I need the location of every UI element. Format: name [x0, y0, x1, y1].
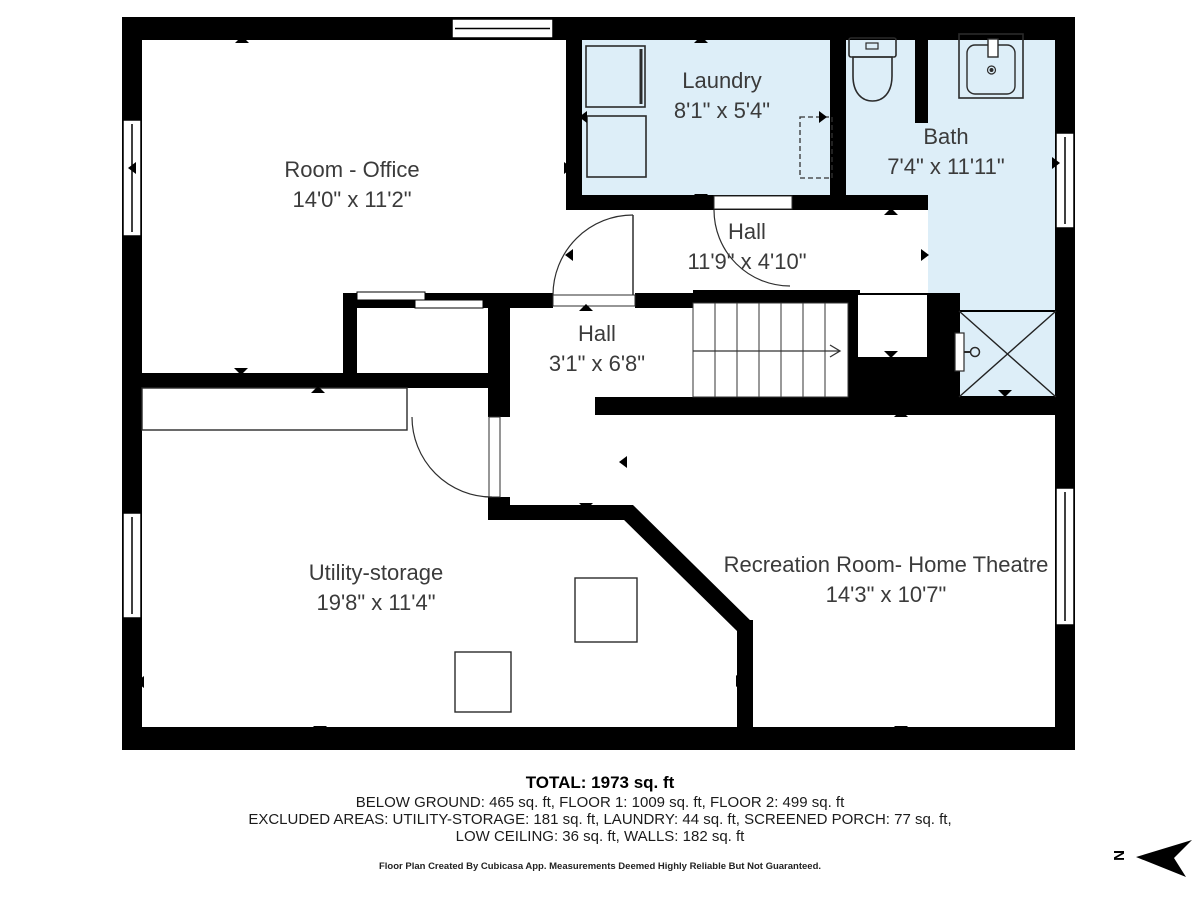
room-name: Bath	[887, 122, 1004, 152]
staircase	[693, 303, 848, 397]
window-top	[452, 19, 553, 38]
room-dims: 8'1" x 5'4"	[674, 96, 770, 126]
room-label-hall-upper: Hall 11'9" x 4'10"	[687, 217, 806, 277]
room-name: Utility-storage	[309, 558, 443, 588]
utility-box-1	[575, 578, 637, 642]
disclaimer: Floor Plan Created By Cubicasa App. Meas…	[0, 861, 1200, 872]
room-label-hall-lower: Hall 3'1" x 6'8"	[549, 319, 645, 379]
room-name: Hall	[687, 217, 806, 247]
utility-box-2	[455, 652, 511, 712]
room-dims: 19'8" x 11'4"	[309, 588, 443, 618]
floorplan-drawing	[0, 0, 1200, 900]
room-label-recreation: Recreation Room- Home Theatre 14'3" x 10…	[724, 550, 1049, 610]
floor-areas: BELOW GROUND: 465 sq. ft, FLOOR 1: 1009 …	[0, 794, 1200, 811]
room-dims: 14'3" x 10'7"	[724, 580, 1049, 610]
window-right-bath	[1056, 133, 1074, 228]
window-left-upper	[123, 120, 141, 236]
room-name: Room - Office	[284, 155, 419, 185]
window-right-rec	[1056, 488, 1074, 625]
room-label-laundry: Laundry 8'1" x 5'4"	[674, 66, 770, 126]
area-summary: TOTAL: 1973 sq. ft BELOW GROUND: 465 sq.…	[0, 772, 1200, 872]
room-dims: 14'0" x 11'2"	[284, 185, 419, 215]
excluded-areas-2: LOW CEILING: 36 sq. ft, WALLS: 182 sq. f…	[0, 828, 1200, 845]
office-door	[553, 215, 635, 306]
excluded-areas-1: EXCLUDED AREAS: UTILITY-STORAGE: 181 sq.…	[0, 811, 1200, 828]
window-left-lower	[123, 513, 141, 618]
room-name: Recreation Room- Home Theatre	[724, 550, 1049, 580]
room-dims: 7'4" x 11'11"	[887, 152, 1004, 182]
stair-landing	[858, 295, 927, 357]
utility-counter	[142, 388, 407, 430]
room-dims: 11'9" x 4'10"	[687, 247, 806, 277]
utility-door	[412, 417, 500, 497]
room-label-office: Room - Office 14'0" x 11'2"	[284, 155, 419, 215]
furniture	[142, 388, 637, 712]
room-name: Hall	[549, 319, 645, 349]
room-dims: 3'1" x 6'8"	[549, 349, 645, 379]
room-label-utility: Utility-storage 19'8" x 11'4"	[309, 558, 443, 618]
room-name: Laundry	[674, 66, 770, 96]
room-label-bath: Bath 7'4" x 11'11"	[887, 122, 1004, 182]
shower-icon	[955, 311, 1056, 397]
floorplan-page: Room - Office 14'0" x 11'2" Laundry 8'1"…	[0, 0, 1200, 900]
total-area: TOTAL: 1973 sq. ft	[0, 772, 1200, 794]
